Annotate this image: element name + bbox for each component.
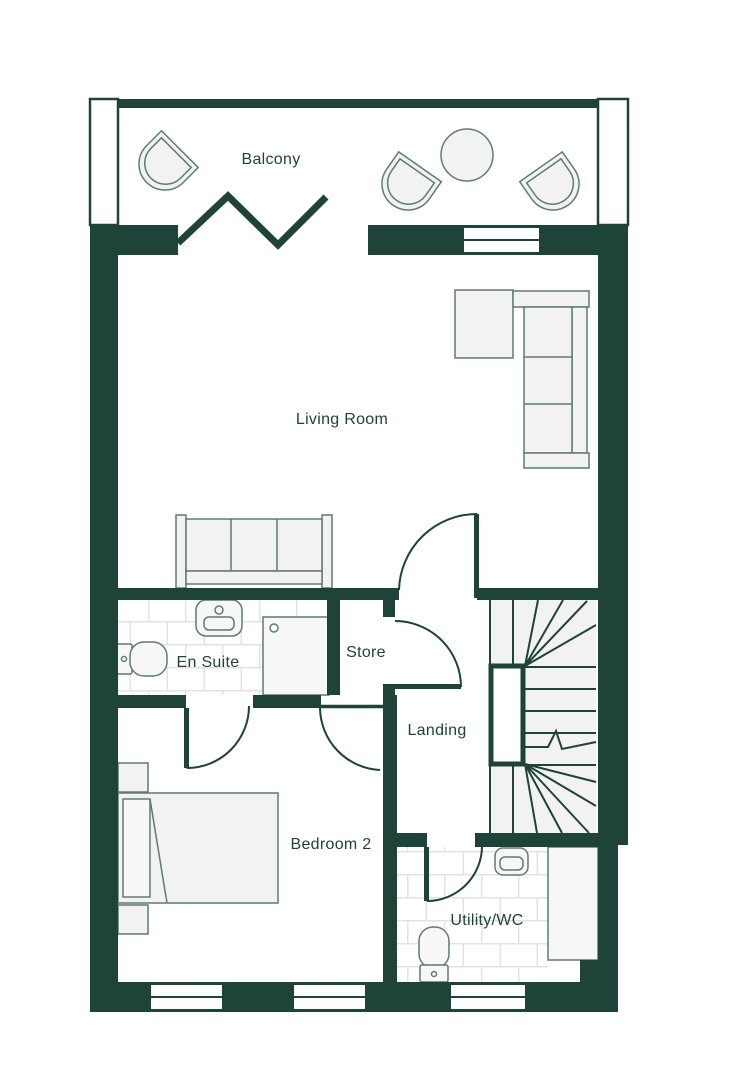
round-table [441, 129, 493, 181]
bedroom-2-label: Bedroom 2 [291, 836, 372, 853]
balcony-side-rail-right [598, 99, 628, 225]
living-room-south-wall-right [477, 588, 598, 600]
tub-chair [372, 152, 442, 220]
living-room-door [399, 514, 477, 598]
floor-plan: Balcony Living Room En Suite Store Landi… [0, 0, 732, 1080]
bedside-table [118, 763, 148, 792]
sofa [176, 515, 332, 588]
shower-drain [270, 624, 278, 632]
balcony-divider-left [118, 225, 178, 255]
utility-north-wall-left [397, 833, 427, 847]
bedside-table [118, 905, 148, 934]
corner-notch [580, 960, 598, 984]
tub-chair [520, 152, 590, 220]
store-door [395, 621, 461, 687]
en-suite-south-wall-right [253, 695, 321, 708]
utility-counter [548, 847, 598, 960]
en-suite-south-wall-left [118, 695, 186, 708]
right-wall-upper [598, 225, 628, 845]
toilet-bowl [419, 927, 449, 968]
bedroom-landing-divider [383, 695, 397, 982]
double-bed [118, 763, 278, 934]
bedroom-2-door [320, 707, 383, 771]
floor-plan-svg: Balcony Living Room En Suite Store Landi… [0, 0, 732, 1080]
flush-button [432, 972, 437, 977]
balcony-side-rail-left [90, 99, 118, 225]
store-door-jamb-top [383, 598, 395, 617]
stair-newel-void [491, 666, 523, 764]
left-wall [90, 225, 118, 1012]
flush-button [122, 657, 127, 662]
bifold-balcony-door [178, 196, 326, 245]
living-room-south-wall-left [118, 588, 399, 600]
balcony-furniture [128, 129, 589, 220]
utility-north-wall-right [475, 833, 598, 847]
en-suite-door [187, 706, 250, 768]
en-suite-store-divider [327, 600, 340, 695]
corner-sofa [455, 290, 589, 468]
tap [215, 606, 223, 614]
balcony-front-rail [118, 99, 598, 108]
tub-chair [128, 131, 198, 201]
living-room-label: Living Room [296, 411, 388, 428]
pillow [123, 799, 150, 897]
balcony-label: Balcony [241, 151, 300, 168]
store-label: Store [346, 644, 386, 661]
utility-wc-label: Utility/WC [450, 912, 523, 929]
landing-label: Landing [407, 722, 466, 739]
toilet-bowl [130, 642, 167, 676]
en-suite-label: En Suite [177, 654, 240, 671]
